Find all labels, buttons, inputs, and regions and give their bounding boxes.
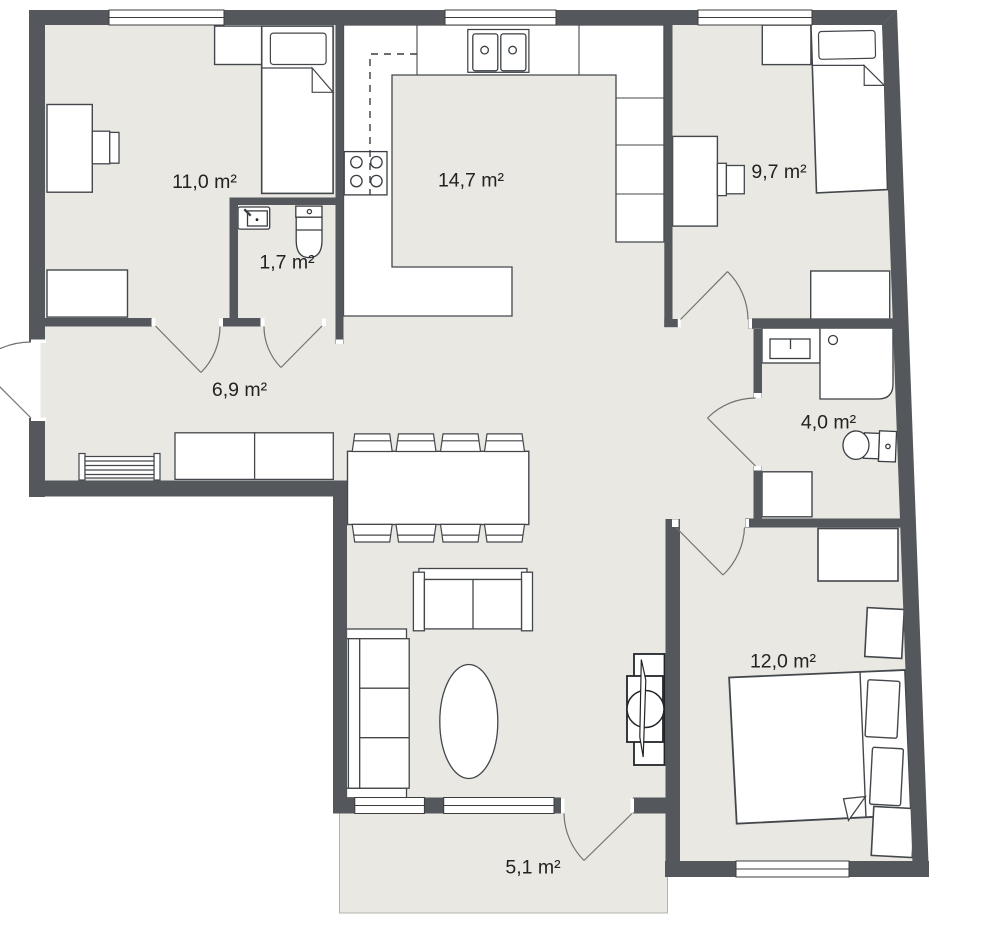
- svg-text:14,7 m²: 14,7 m²: [438, 170, 505, 192]
- svg-text:5,1 m²: 5,1 m²: [505, 857, 561, 879]
- svg-text:1,7 m²: 1,7 m²: [259, 252, 315, 274]
- svg-text:12,0 m²: 12,0 m²: [750, 651, 817, 673]
- svg-text:9,7 m²: 9,7 m²: [751, 161, 807, 183]
- svg-text:4,0 m²: 4,0 m²: [801, 412, 857, 434]
- svg-text:11,0 m²: 11,0 m²: [172, 171, 237, 193]
- svg-text:6,9 m²: 6,9 m²: [212, 379, 268, 401]
